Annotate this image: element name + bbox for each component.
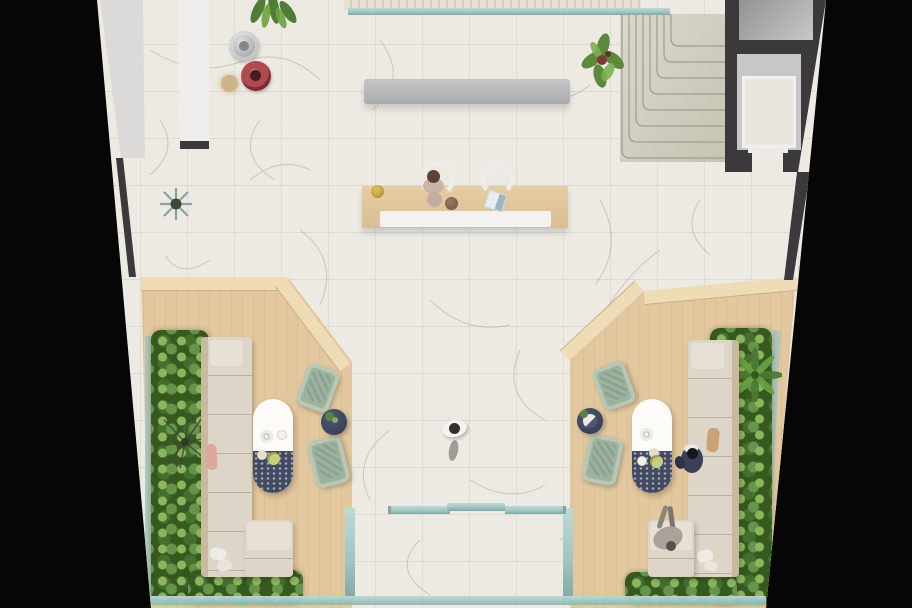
staircase	[620, 14, 727, 162]
room-door-opening	[752, 148, 783, 172]
door-jamb-right	[783, 144, 788, 153]
partition-wall-inner-cap	[180, 141, 209, 149]
entry-glass-segment-1	[388, 506, 450, 514]
coffee-table-left	[253, 399, 293, 493]
top-glass-wall	[348, 8, 670, 15]
pink-throw-pillow	[205, 444, 218, 471]
armchair-seat	[588, 440, 618, 478]
door-jamb-left	[748, 144, 753, 153]
person-walking-head	[449, 423, 460, 434]
red-pouf-center	[250, 70, 261, 81]
entry-glass-segment-3	[505, 506, 566, 514]
desk-counter-panel	[380, 211, 551, 227]
table-left-plate	[260, 430, 273, 443]
table-left-green-tray	[267, 452, 280, 465]
sofa-left-back-cushion	[210, 340, 243, 366]
chaise-left-pad	[247, 522, 291, 550]
receptionist-hair	[427, 170, 440, 183]
armchair-seat	[313, 442, 344, 481]
desk-stool	[445, 197, 458, 210]
desk-chair-right	[480, 161, 514, 196]
vestibule-wall-right	[563, 508, 573, 600]
side-table-left-plant-2	[332, 417, 338, 423]
receptionist-arms	[427, 192, 442, 207]
tan-throw-pillow	[706, 428, 720, 453]
aloe-plant	[157, 185, 195, 223]
building-footprint	[0, 0, 912, 608]
hanging-plant	[244, 0, 300, 38]
service-room-inner	[742, 76, 796, 148]
silver-pouf-center	[239, 41, 249, 51]
floor-plan-stage	[0, 0, 912, 608]
side-table-right-plant	[580, 410, 588, 418]
elevator-cab	[739, 0, 813, 40]
bottom-glass-wall	[151, 596, 766, 605]
table-right-plate	[640, 428, 653, 441]
table-left-saucer	[257, 450, 267, 460]
vestibule-wall-left	[345, 508, 355, 600]
platform-step-edge-left	[141, 277, 289, 291]
table-left-cup	[277, 430, 287, 440]
tan-basket	[221, 75, 238, 92]
stair-side-plant	[580, 32, 626, 92]
armchair-seat	[598, 367, 629, 403]
concrete-bench	[364, 79, 570, 104]
table-right-cup	[637, 456, 647, 466]
coffee-table-right	[632, 399, 672, 493]
desk-gold-decor	[371, 185, 384, 198]
armchair-seat	[303, 369, 334, 405]
entry-glass-segment-2	[447, 503, 505, 511]
table-right-green-tray	[650, 455, 663, 468]
sofa-right-back-cushion	[691, 343, 724, 369]
person-lounging-head	[666, 541, 676, 551]
person-sitting-head	[687, 448, 698, 459]
